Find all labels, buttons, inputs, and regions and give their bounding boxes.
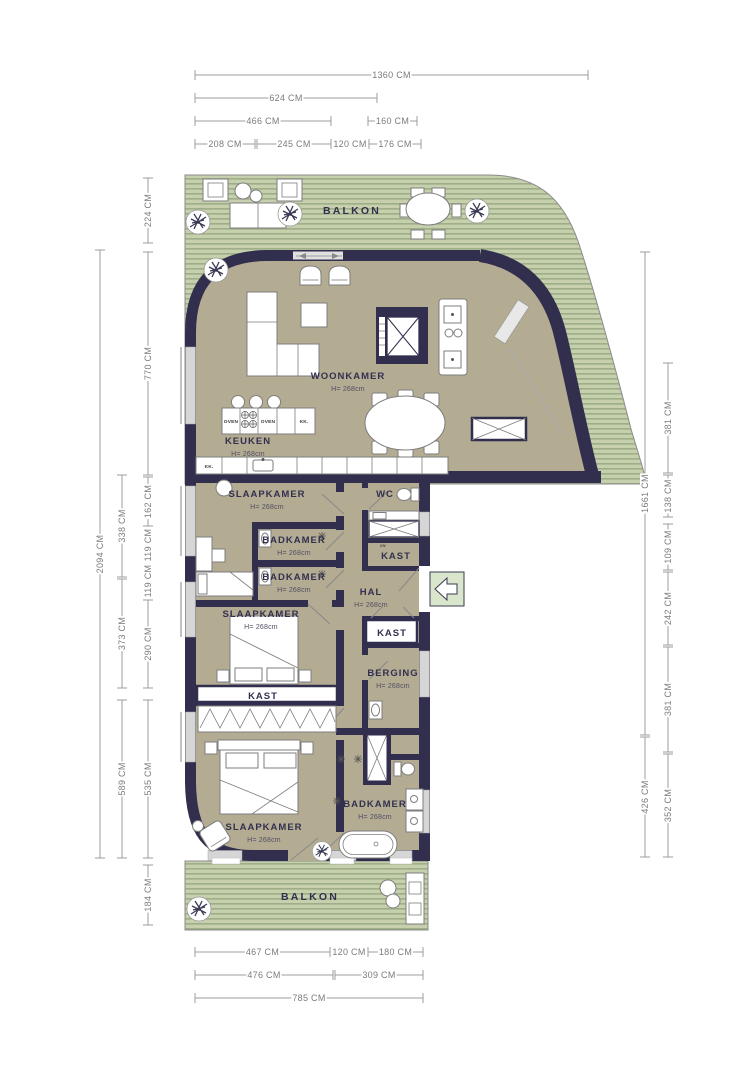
fireplace (376, 307, 428, 364)
room-height: H= 268cm (277, 587, 311, 594)
dimension-label: 184 CM (143, 878, 153, 911)
dimension: 338 CM (117, 475, 127, 577)
dimension: 208 CM (195, 139, 255, 149)
dimension: 770 CM (143, 252, 153, 475)
dimension: 138 CM (663, 475, 673, 517)
room-name: KAST (381, 551, 411, 562)
dimension: 381 CM (663, 647, 673, 752)
dimension-label: 467 CM (246, 947, 279, 957)
armchair (300, 266, 321, 285)
room-height: H= 268cm (376, 683, 410, 690)
plant-icon (312, 842, 331, 861)
entrance-arrow-icon (430, 572, 464, 606)
dimension: 785 CM (195, 993, 423, 1003)
dimension-label: 290 CM (143, 627, 153, 660)
dimension: 109 CM (663, 524, 673, 570)
room-label-kast-hal: KAST (377, 628, 407, 639)
dimension: 624 CM (195, 93, 377, 103)
room-height: H= 268cm (331, 386, 365, 393)
dimension: 373 CM (117, 579, 127, 688)
light-icon (337, 755, 345, 763)
dimension: 466 CM (195, 116, 331, 126)
dimension-label: 426 CM (640, 780, 650, 813)
plant-icon (278, 202, 302, 226)
wardrobe (198, 706, 336, 732)
dimension-label: 119 CM (143, 565, 153, 598)
room-name: SLAAPKAMER (225, 822, 302, 833)
dimension: 180 CM (368, 947, 423, 957)
dimension: 426 CM (640, 737, 650, 857)
dimension: 176 CM (369, 139, 421, 149)
fixture-label-oven-left: OVEN (224, 419, 239, 425)
fixture-label-cv: cv (380, 544, 386, 549)
room-height: H= 268cm (277, 550, 311, 557)
room-name: BADKAMER (343, 799, 406, 810)
coffee-table (301, 303, 327, 327)
room-name: KAST (377, 628, 407, 639)
dimension-label: 535 CM (143, 762, 153, 795)
dimension-label: 180 CM (379, 947, 412, 957)
dimension: 120 CM (331, 947, 366, 957)
toilet (394, 762, 415, 776)
room-height: H= 268cm (354, 602, 388, 609)
kitchen-counter (196, 457, 448, 474)
dimension: 119 CM (143, 563, 153, 598)
room-label-kast-cv: KAST (381, 551, 411, 562)
dimension-label: 160 CM (376, 116, 409, 126)
wc-toilet (397, 488, 419, 501)
room-label-balkon-bottom: BALKON (281, 891, 339, 903)
dimension: 1661 CM (640, 252, 650, 735)
berging-sink (369, 701, 382, 719)
dimension: 242 CM (663, 572, 673, 645)
room-name: KEUKEN (225, 436, 271, 447)
dimension: 476 CM (195, 970, 333, 980)
dimension-label: 120 CM (333, 139, 366, 149)
dimension: 290 CM (143, 600, 153, 688)
dimension-label: 476 CM (247, 970, 280, 980)
fixture-label-oven-right: OVEN (261, 419, 276, 425)
room-height: H= 268cm (244, 624, 278, 631)
linen-cabinet (369, 521, 419, 537)
floor-plan-svg: BALKONWOONKAMERH= 268cmKEUKENH= 268cmSLA… (0, 0, 745, 1080)
sideboard (439, 299, 467, 375)
dimension-label: 138 CM (663, 479, 673, 512)
dimension-label: 224 CM (143, 194, 153, 227)
dimension-label: 770 CM (143, 347, 153, 380)
dimension: 119 CM (143, 527, 153, 562)
light-icon (354, 755, 362, 763)
room-name: SLAAPKAMER (228, 489, 305, 500)
fixture-label-kk-counter: KK. (205, 464, 214, 470)
dimension-label: 373 CM (117, 617, 127, 650)
room-label-balkon-top: BALKON (323, 205, 381, 217)
master-bed (205, 740, 313, 814)
room-name: BERGING (367, 668, 418, 679)
room-name: HAL (360, 587, 383, 598)
wc-sink (369, 511, 419, 520)
room-height: H= 268cm (247, 837, 281, 844)
room-label-kast-slaapkamer: KAST (248, 691, 278, 702)
room-name: BALKON (323, 205, 381, 217)
dimension-label: 1661 CM (640, 474, 650, 513)
light-icon (333, 797, 341, 805)
armchair (329, 266, 350, 285)
plant-icon (465, 199, 489, 223)
room-name: BADKAMER (262, 535, 325, 546)
dimension: 352 CM (663, 754, 673, 857)
plant-icon (187, 897, 211, 921)
room-name: SLAAPKAMER (222, 609, 299, 620)
dimension: 467 CM (195, 947, 330, 957)
shower (363, 731, 391, 785)
dimension-label: 1360 CM (372, 70, 411, 80)
dimension-label: 785 CM (292, 993, 325, 1003)
dimension: 160 CM (368, 116, 417, 126)
dimension-label: 245 CM (277, 139, 310, 149)
room-name: BADKAMER (262, 572, 325, 583)
dimension-label: 624 CM (269, 93, 302, 103)
bathtub (339, 831, 397, 858)
fixture-label-kk-island: KK. (300, 419, 309, 425)
dimension-label: 2094 CM (95, 535, 105, 574)
room-name: BALKON (281, 891, 339, 903)
room-label-wc: WC (376, 489, 394, 500)
dimension-label: 119 CM (143, 529, 153, 562)
dimension: 535 CM (143, 700, 153, 858)
dimension-label: 381 CM (663, 401, 673, 434)
dimension: 589 CM (117, 700, 127, 858)
dining-table (365, 390, 445, 457)
dimension-label: 381 CM (663, 683, 673, 716)
double-sink (406, 789, 423, 832)
dimension: 309 CM (335, 970, 423, 980)
dimension: 381 CM (663, 363, 673, 473)
room-height: H= 268cm (358, 814, 392, 821)
room-height: H= 268cm (250, 504, 284, 511)
dimension-label: 242 CM (663, 592, 673, 625)
plant-icon (186, 210, 210, 234)
dimension: 120 CM (332, 139, 367, 149)
dimension-label: 309 CM (362, 970, 395, 980)
bench (472, 418, 526, 440)
room-name: WC (376, 489, 394, 500)
room-name: WOONKAMER (311, 371, 385, 382)
room-name: KAST (248, 691, 278, 702)
dimension-label: 466 CM (246, 116, 279, 126)
dimension-label: 176 CM (378, 139, 411, 149)
dimension-label: 162 CM (143, 485, 153, 518)
dimension-label: 338 CM (117, 509, 127, 542)
dimension: 1360 CM (195, 70, 588, 80)
dimension-label: 208 CM (208, 139, 241, 149)
dimension: 184 CM (143, 865, 153, 925)
dimension: 224 CM (143, 178, 153, 243)
dimension: 162 CM (143, 477, 153, 526)
dimension-label: 589 CM (117, 762, 127, 795)
floor-plan: BALKONWOONKAMERH= 268cmKEUKENH= 268cmSLA… (0, 0, 745, 1080)
plant-icon (204, 258, 228, 282)
dimension: 245 CM (257, 139, 331, 149)
dimension: 2094 CM (95, 250, 105, 858)
dimension-label: 120 CM (332, 947, 365, 957)
dimension-label: 352 CM (663, 789, 673, 822)
dimension-label: 109 CM (663, 530, 673, 563)
room-height: H= 268cm (231, 451, 265, 458)
